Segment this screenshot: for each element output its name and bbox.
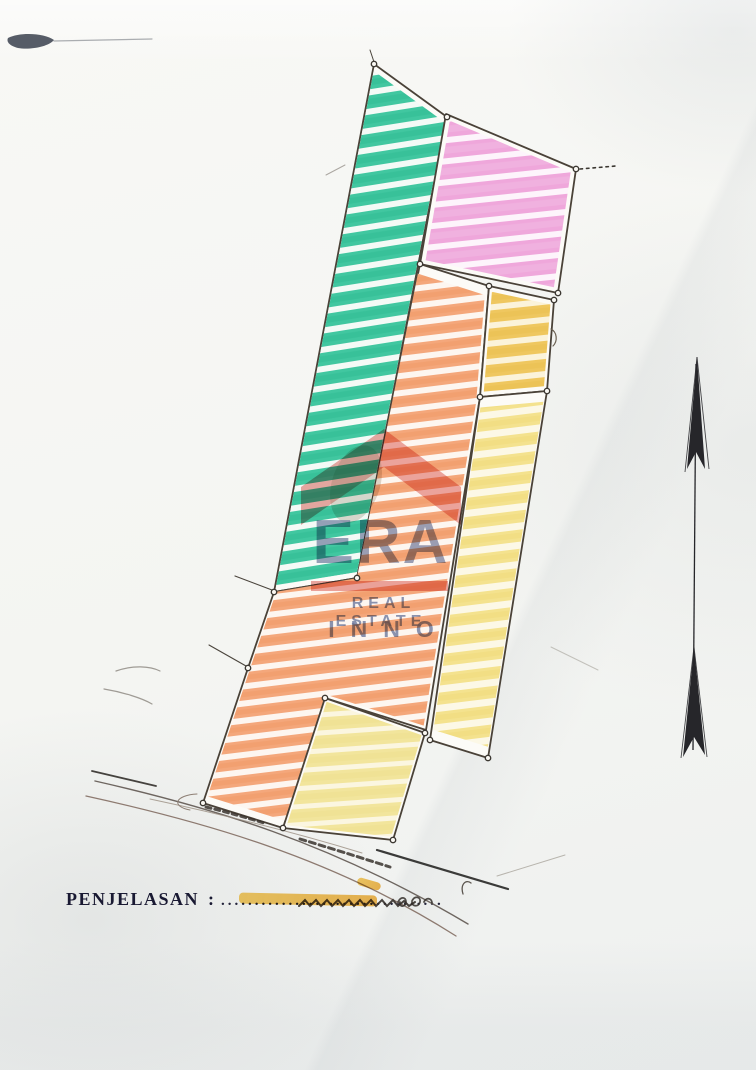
leader-line — [235, 576, 272, 590]
leader-line — [209, 645, 246, 666]
survey-node — [555, 290, 560, 295]
pencil-arc — [104, 689, 152, 704]
survey-node — [417, 261, 422, 266]
survey-node — [245, 665, 250, 670]
survey-node — [427, 737, 432, 742]
scan-artifacts — [7, 34, 54, 49]
pencil-scratch — [551, 647, 598, 670]
pencil-tick — [326, 165, 345, 175]
north-arrow — [681, 357, 709, 758]
scan-smudge-tail — [54, 39, 152, 41]
parcel-golden-box-fill — [484, 292, 551, 392]
survey-node — [486, 283, 491, 288]
survey-node — [390, 837, 395, 842]
leader-line — [370, 50, 374, 62]
north-arrow-head — [687, 357, 705, 469]
ink-smudge — [7, 34, 54, 49]
north-arrow-tail — [683, 647, 705, 757]
parcel-pink-block-fill — [426, 121, 571, 288]
survey-node — [200, 800, 205, 805]
survey-node — [551, 297, 556, 302]
survey-node — [573, 166, 578, 171]
scanned-site-plan-page: PENJELASAN:.............................… — [0, 0, 756, 1070]
survey-node — [422, 730, 427, 735]
survey-node — [544, 388, 549, 393]
parcels-layer — [203, 64, 576, 840]
survey-node — [271, 589, 276, 594]
road-dark-segment — [377, 850, 508, 889]
survey-node — [485, 755, 490, 760]
survey-node — [280, 825, 285, 830]
survey-node — [354, 575, 359, 580]
survey-tie-dotted — [580, 166, 616, 169]
site-plan-drawing — [0, 0, 756, 1070]
road-hook — [462, 882, 471, 894]
survey-node — [444, 114, 449, 119]
pencil-scratch — [497, 855, 565, 876]
pencil-arc — [116, 667, 160, 671]
survey-node — [371, 61, 376, 66]
survey-node — [322, 695, 327, 700]
road-edge — [92, 771, 156, 786]
survey-node — [477, 394, 482, 399]
